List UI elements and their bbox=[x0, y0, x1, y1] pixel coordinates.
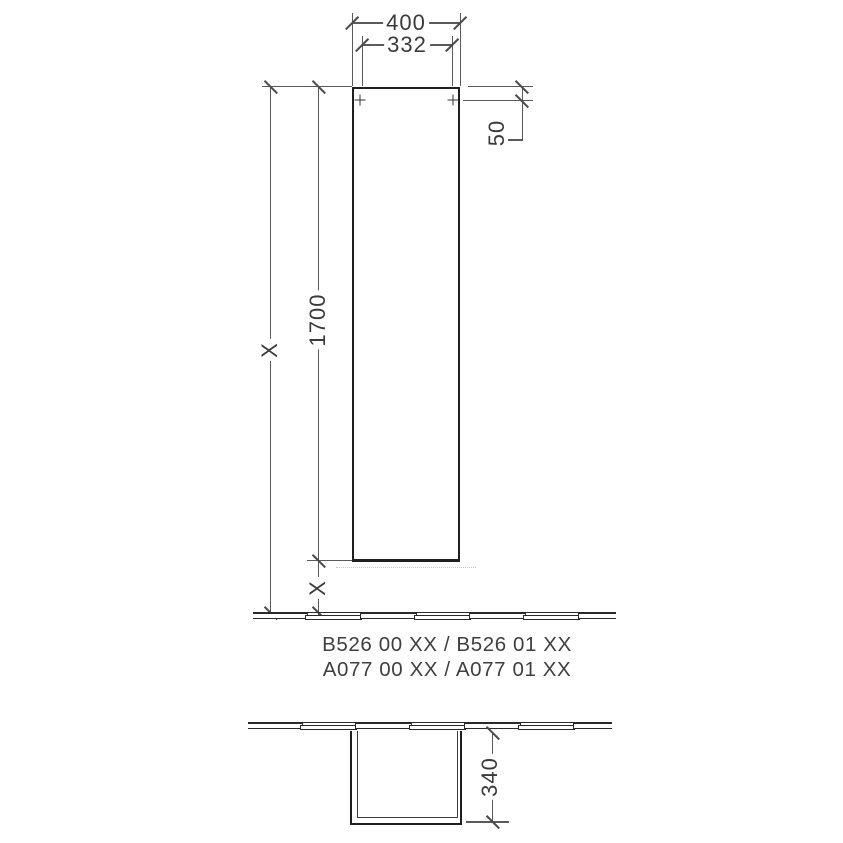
dim-label-cabinet-height: 1700 bbox=[307, 291, 329, 350]
dim-label-total-height: X bbox=[259, 339, 281, 361]
dim-label-fixing-offset: 50 bbox=[486, 117, 508, 149]
fixing-point-right-cross-icon bbox=[448, 95, 459, 106]
technical-drawing-canvas: 400 332 50 X 1700 X B526 00 XX / B526 01… bbox=[0, 0, 843, 843]
product-codes: B526 00 XX / B526 01 XX A077 00 XX / A07… bbox=[322, 632, 572, 682]
hatch-plank bbox=[578, 613, 617, 619]
hatch-plank bbox=[248, 723, 303, 729]
cabinet-front-outline bbox=[352, 87, 460, 562]
cabinet-plan-inner-wall bbox=[357, 731, 458, 818]
cabinet-plan-outline bbox=[350, 731, 462, 825]
hatch-plank bbox=[305, 615, 362, 621]
fixing-point-left-cross-icon bbox=[355, 95, 366, 106]
hatch-plank bbox=[409, 725, 466, 731]
hatch-plank bbox=[414, 615, 471, 621]
hatch-plank bbox=[469, 613, 526, 619]
dim-line-fixing-offset bbox=[522, 86, 523, 140]
extension-line bbox=[466, 821, 509, 822]
hatch-plank bbox=[300, 725, 357, 731]
wall-hatch-band-lower bbox=[248, 722, 612, 731]
product-code-line-1: B526 00 XX / B526 01 XX bbox=[322, 632, 572, 657]
hatch-plank bbox=[253, 613, 308, 619]
hatch-plank bbox=[518, 725, 575, 731]
hatch-plank bbox=[464, 723, 521, 729]
product-code-line-2: A077 00 XX / A077 01 XX bbox=[322, 657, 572, 682]
hatch-plank bbox=[355, 723, 412, 729]
hatch-plank bbox=[360, 613, 417, 619]
hatch-plank bbox=[573, 723, 613, 729]
cabinet-bottom-shadow-line bbox=[336, 567, 476, 568]
dim-label-floor-gap: X bbox=[307, 577, 329, 599]
extension-line bbox=[262, 86, 352, 87]
dim-label-width-inner: 332 bbox=[384, 34, 430, 56]
hatch-plank bbox=[523, 615, 580, 621]
dim-label-width-outer: 400 bbox=[383, 12, 429, 34]
extension-line bbox=[307, 560, 352, 561]
floor-hatch-band-upper bbox=[253, 612, 616, 621]
dim-label-depth: 340 bbox=[479, 754, 501, 800]
